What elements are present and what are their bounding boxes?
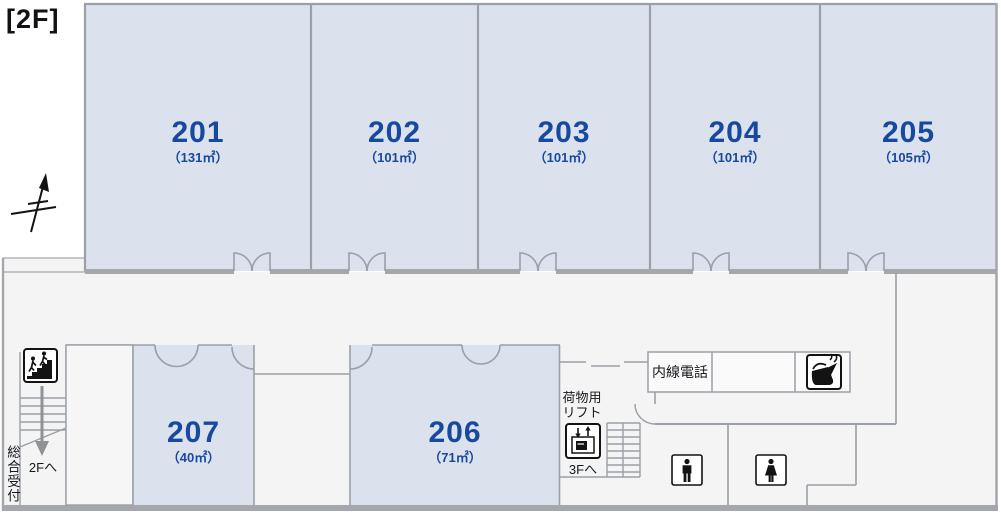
kettle-icon <box>807 354 841 389</box>
cargo-lift-icon <box>566 424 600 458</box>
male-restroom-icon <box>672 455 702 485</box>
cargo-lift-label-line2: リフト <box>553 405 611 420</box>
intercom-label: 内線電話 <box>648 352 712 392</box>
room-204-fill <box>650 3 820 271</box>
room-202-fill <box>311 3 478 271</box>
to-3f-label: 3Fへ <box>558 459 608 478</box>
middle-room <box>66 345 133 505</box>
room-206-fill <box>350 345 560 505</box>
stairs-icon <box>24 349 57 382</box>
female-restroom-icon <box>756 455 786 485</box>
floorplan-canvas <box>0 0 1001 514</box>
to-2f-label: 2Fへ <box>22 457 64 476</box>
room-207-fill <box>133 345 254 505</box>
floor-plan-2f: [2F] 201 （131㎡） 202 （101㎡） 203 （101㎡） 20… <box>0 0 1001 514</box>
outer-wall-bottom <box>2 505 998 511</box>
corridor-notch <box>3 258 85 272</box>
reception-label: 総合受付 <box>2 445 22 503</box>
cargo-lift-label: 荷物用 リフト <box>553 390 611 420</box>
room-fills-top <box>85 3 997 271</box>
floor-title: [2F] <box>6 4 60 35</box>
north-arrow-icon <box>11 173 56 232</box>
room-201-fill <box>85 3 311 271</box>
room-203-fill <box>478 3 650 271</box>
cargo-lift-label-line1: 荷物用 <box>553 390 611 405</box>
room-205-fill <box>820 3 997 271</box>
